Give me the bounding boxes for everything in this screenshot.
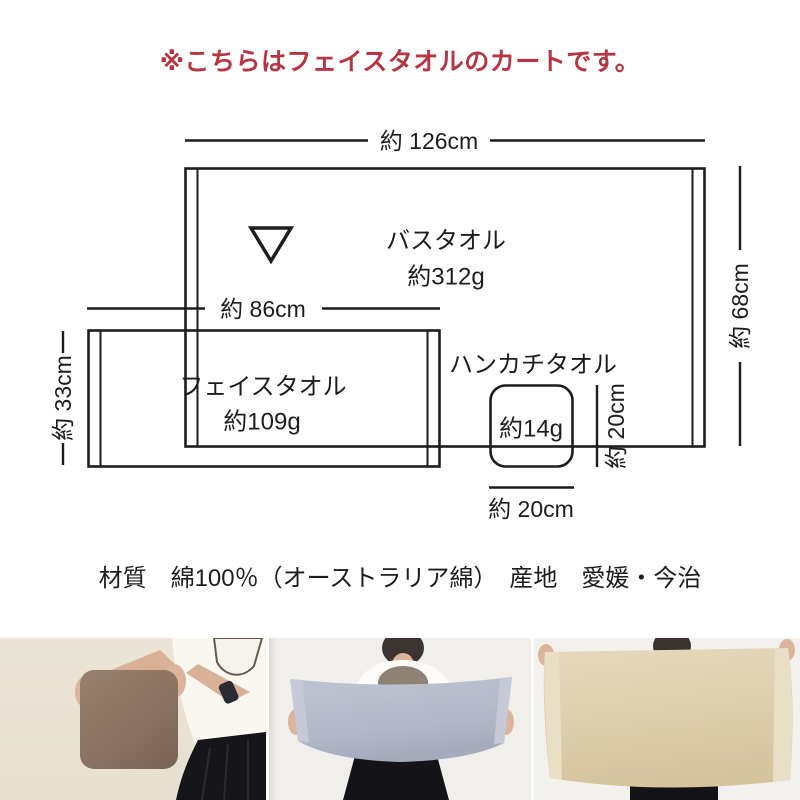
photo-bath-towel xyxy=(534,638,800,800)
hand-towel-name: ハンカチタオル xyxy=(449,352,617,379)
size-diagram: 約 126cm バスタオル 約312g 約 86cm 約 68cm xyxy=(0,100,800,530)
photo-face-towel xyxy=(269,638,531,800)
bath-towel-weight: 約312g xyxy=(407,264,484,291)
bath-width-dimension: 約 126cm xyxy=(185,128,705,154)
hand-towel-weight: 約14g xyxy=(499,416,563,443)
photo-strip xyxy=(0,638,800,800)
photo-hand-towel xyxy=(0,638,266,800)
hand-towel-outline: ハンカチタオル 約14g 約 20cm 約 20cm xyxy=(449,352,629,523)
face-towel-blue xyxy=(290,677,512,762)
hand-towel-brown xyxy=(80,670,178,769)
face-height-label: 約 33cm xyxy=(50,355,76,441)
hand-height-label: 約 20cm xyxy=(603,383,629,469)
face-height-dimension: 約 33cm xyxy=(50,331,76,465)
bath-width-label: 約 126cm xyxy=(380,128,478,154)
bath-towel-name: バスタオル xyxy=(386,228,506,255)
towel-hem xyxy=(773,648,792,782)
bath-height-label: 約 68cm xyxy=(727,263,753,349)
bath-towel-beige xyxy=(544,648,793,788)
face-towel-name: フェイスタオル xyxy=(179,374,346,401)
face-width-label: 約 86cm xyxy=(220,296,306,322)
material-origin-text: 材質 綿100％（オーストラリア綿） 産地 愛媛・今治 xyxy=(0,558,800,593)
wall-shadow xyxy=(269,638,279,800)
face-towel-weight: 約109g xyxy=(223,409,300,436)
face-width-dimension: 約 86cm xyxy=(87,296,440,322)
hand-width-label: 約 20cm xyxy=(488,496,574,522)
notice-text: ※こちらはフェイスタオルのカートです。 xyxy=(0,42,800,78)
towel-size-product-image: ※こちらはフェイスタオルのカートです。 約 126cm バスタオル 約312g … xyxy=(0,0,800,800)
bath-height-dimension: 約 68cm xyxy=(727,166,753,446)
red-triangle-marker-icon xyxy=(251,228,291,261)
